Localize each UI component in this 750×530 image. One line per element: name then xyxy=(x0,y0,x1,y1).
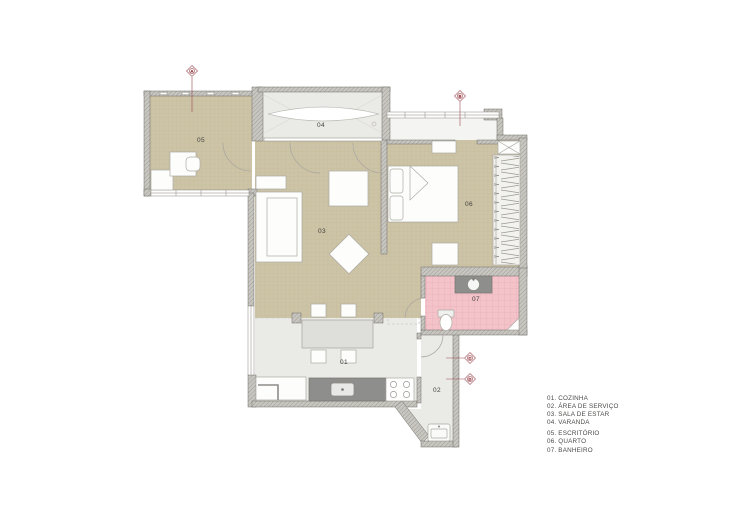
legend-item-servico: 02. ÁREA DE SERVIÇO xyxy=(547,403,619,411)
armchair xyxy=(329,171,368,206)
floor-entry-strip xyxy=(387,118,497,140)
legend-item-sala: 03. SALA DE ESTAR xyxy=(547,411,619,419)
toilet-bowl xyxy=(440,315,452,331)
floor-plan-drawing: A B C D 01 02 03 04 05 06 07 xyxy=(0,0,750,530)
dining-chair xyxy=(311,304,326,317)
shaft-box xyxy=(498,141,520,154)
sink-drain xyxy=(341,388,344,391)
dining-chair xyxy=(341,304,356,317)
stove xyxy=(386,378,414,401)
room-label-sala: 03 xyxy=(318,228,326,235)
room-label-banheiro: 07 xyxy=(472,296,480,303)
dining-chair xyxy=(311,350,326,363)
marker-letter: C xyxy=(469,356,472,361)
pillow xyxy=(390,196,403,220)
pillow xyxy=(390,169,403,193)
legend-item-cozinha: 01. COZINHA xyxy=(547,395,619,403)
legend: 01. COZINHA 02. ÁREA DE SERVIÇO 03. SALA… xyxy=(547,395,619,455)
room-label-cozinha: 01 xyxy=(340,359,348,366)
floor-plan-page: A B C D 01 02 03 04 05 06 07 01. COZI xyxy=(0,0,750,530)
kitchen-cabinet xyxy=(256,377,306,400)
dining-table xyxy=(302,320,373,348)
room-label-varanda: 04 xyxy=(317,122,325,129)
marker-letter: B xyxy=(459,94,462,99)
faucet-dot xyxy=(472,278,474,280)
legend-item-quarto: 06. QUARTO xyxy=(547,438,619,446)
sofa xyxy=(256,192,302,262)
laundry-fixtures xyxy=(428,424,450,441)
legend-item-varanda: 04. VARANDA xyxy=(547,419,619,427)
room-label-quarto: 06 xyxy=(465,201,473,208)
room-label-servico: 02 xyxy=(433,387,441,394)
office-chair xyxy=(186,157,200,171)
dresser xyxy=(432,141,456,153)
wardrobe xyxy=(493,155,520,265)
bench xyxy=(432,243,458,265)
legend-item-banheiro: 07. BANHEIRO xyxy=(547,447,619,455)
marker-letter: D xyxy=(469,377,472,382)
marker-letter: A xyxy=(191,69,194,74)
side-table xyxy=(256,176,286,189)
legend-item-escritorio: 05. ESCRITÓRIO xyxy=(547,430,619,438)
room-label-escritorio: 05 xyxy=(197,137,205,144)
